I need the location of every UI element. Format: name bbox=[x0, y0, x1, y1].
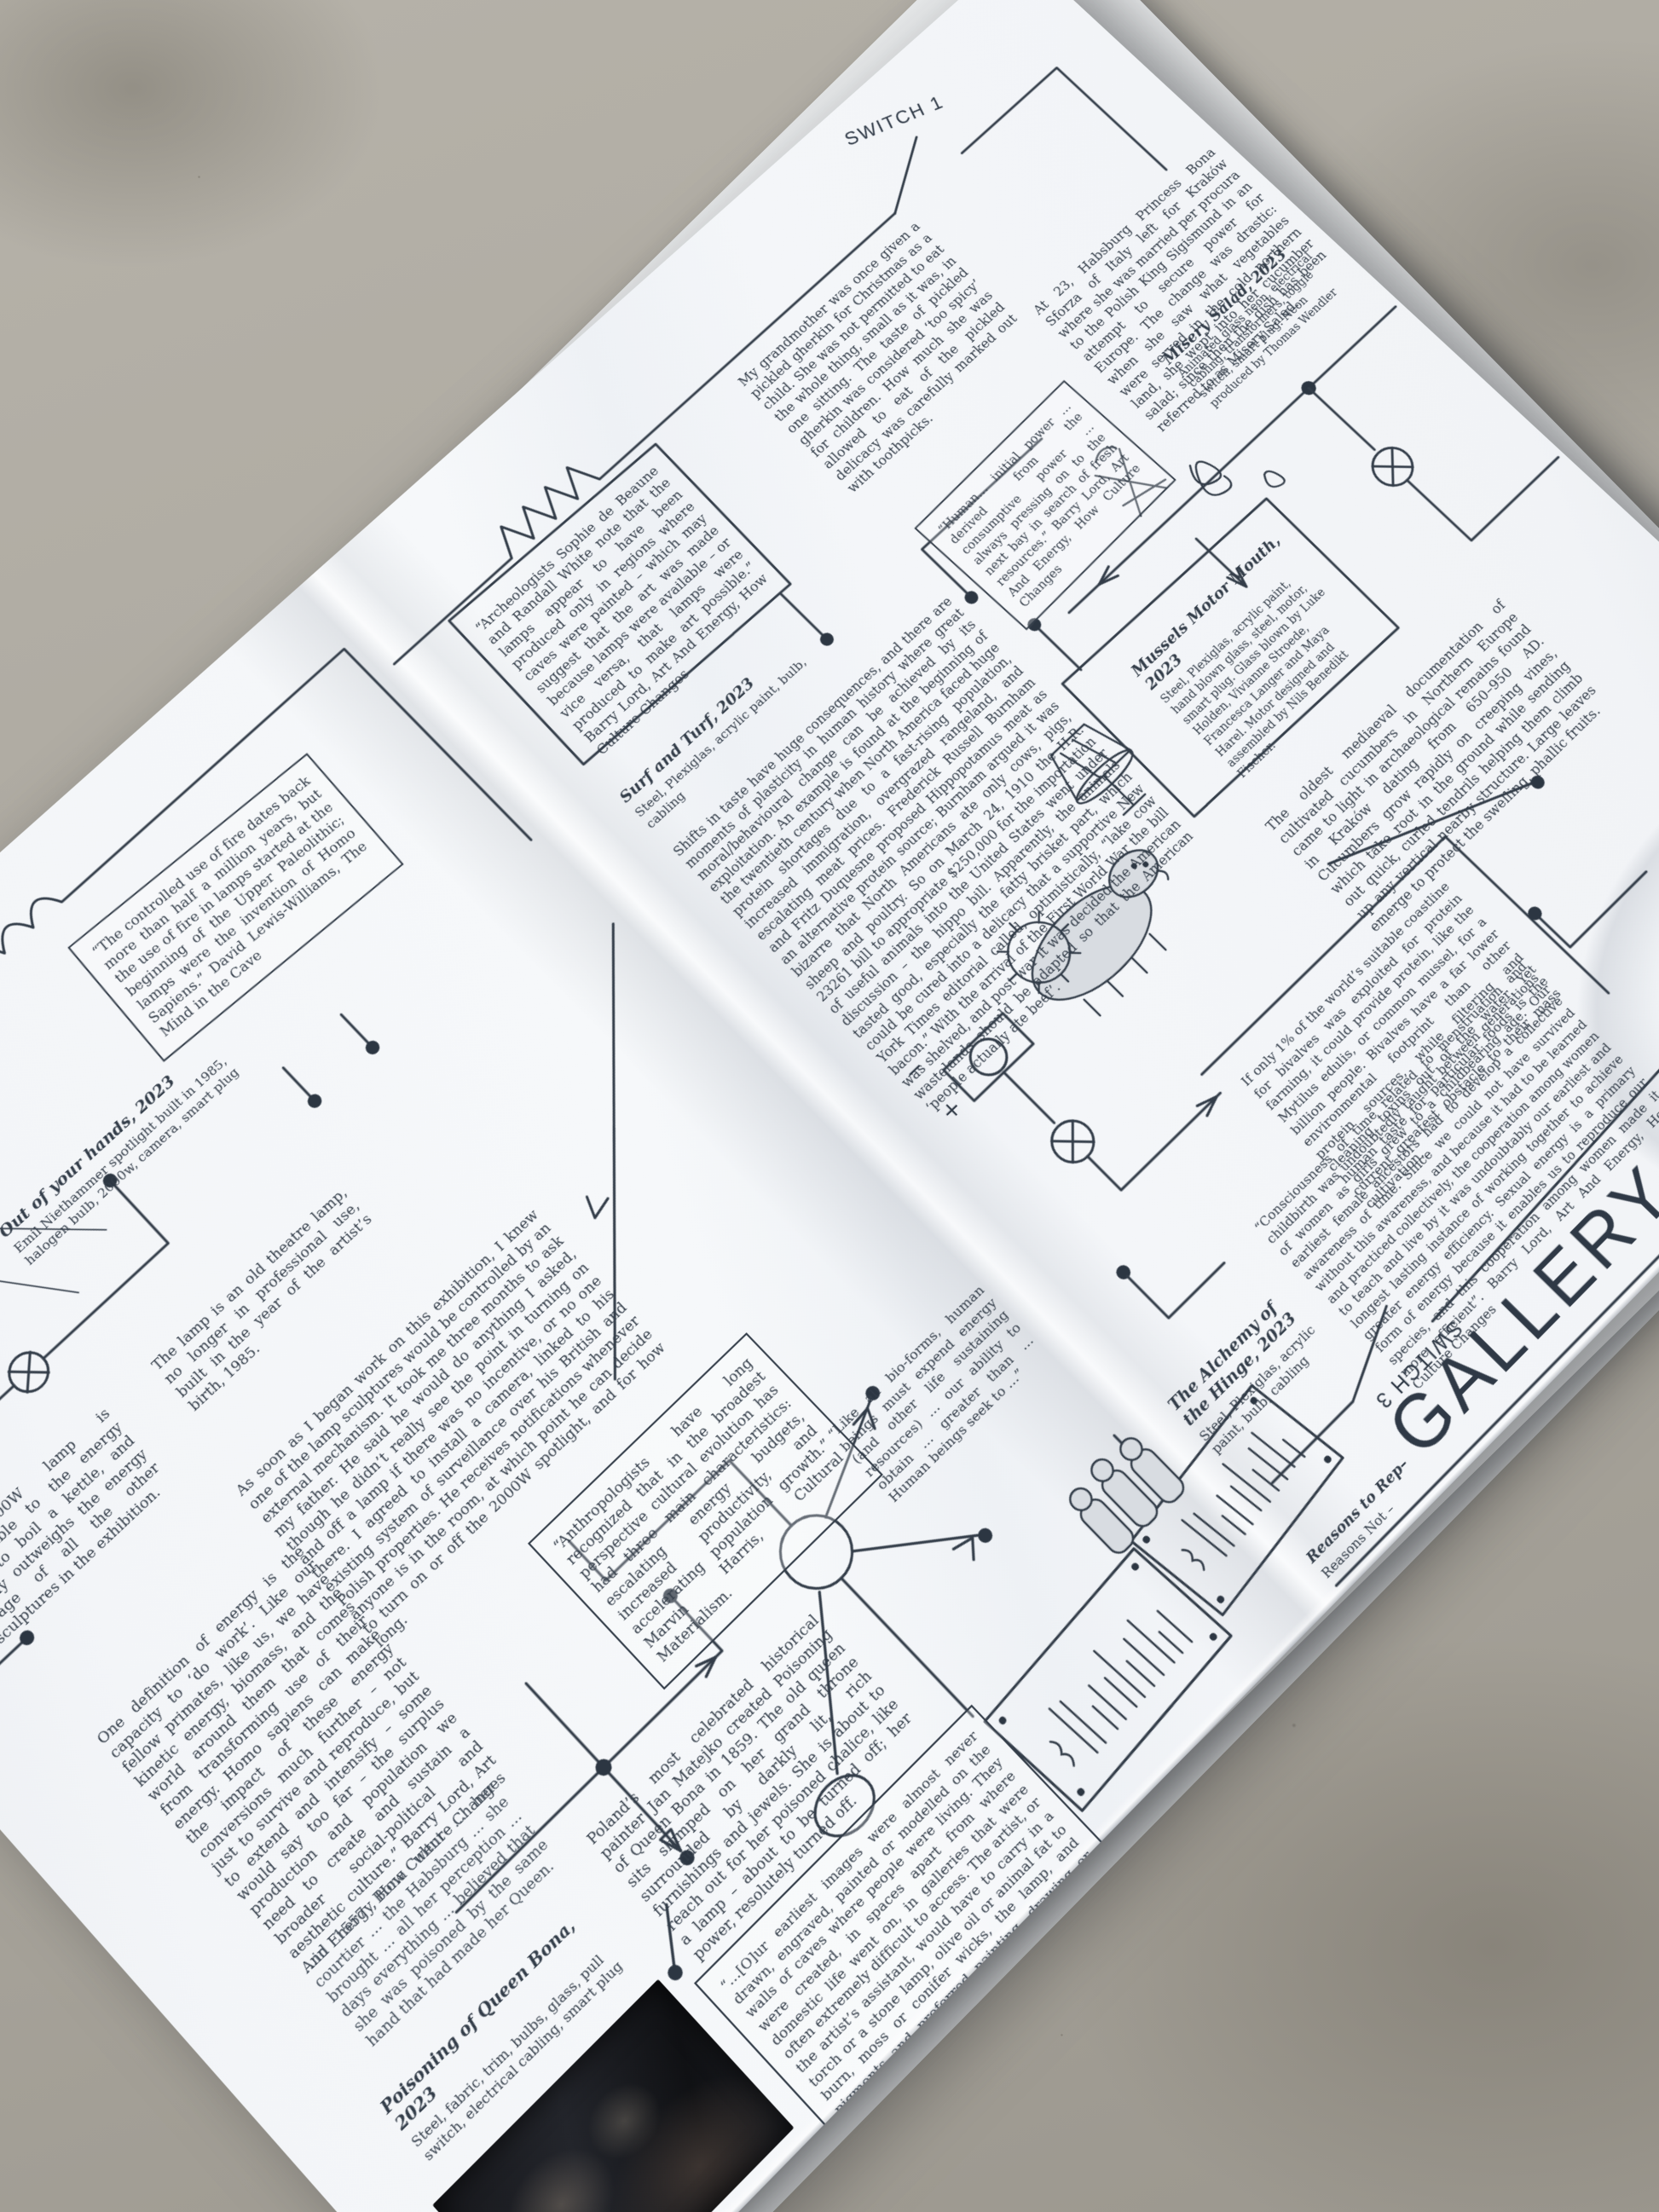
whisk-sketch bbox=[1184, 454, 1234, 501]
wire bbox=[1003, 1072, 1054, 1123]
wire bbox=[1309, 388, 1374, 449]
arrow-wire bbox=[1088, 1060, 1226, 1195]
wire bbox=[283, 1014, 369, 1097]
wire bbox=[0, 1642, 23, 1725]
arrow bbox=[581, 1187, 611, 1218]
hooded-figures-sketch bbox=[1060, 1428, 1188, 1556]
droplet-sketch bbox=[1261, 467, 1286, 491]
magazine-spread: …rt And Energy, How Culture Changes Out … bbox=[0, 0, 1659, 2212]
photo-of-open-magazine-on-concrete-floor: …rt And Energy, How Culture Changes Out … bbox=[0, 0, 1659, 2212]
wire bbox=[1127, 1222, 1224, 1318]
wire bbox=[1038, 628, 1081, 670]
wire bbox=[1539, 842, 1646, 948]
